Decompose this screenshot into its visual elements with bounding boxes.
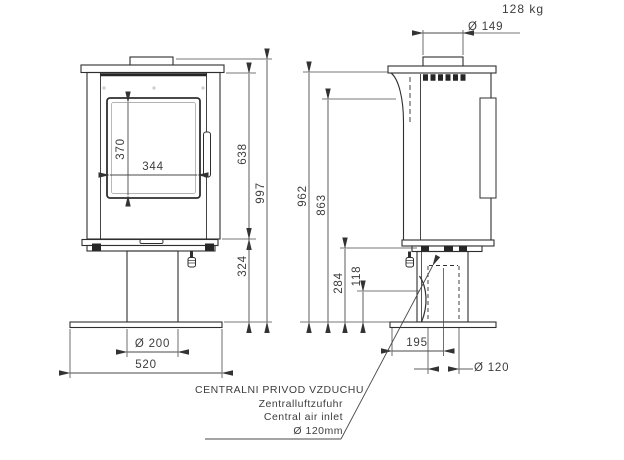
dim-label-pedestal-diameter: Ø 200 [132,337,173,351]
base-plate-side [390,322,496,328]
dim-label-air-inlet-offset: 195 [399,336,435,350]
dim-label-height-flue-axis: 863 [315,190,329,220]
panel-screw-marks [102,86,205,90]
caption-line-cz: CENTRALNI PRIVOD VZDUCHU [195,384,343,398]
air-control-lever-side [406,252,414,268]
front-bottom-recess [140,240,163,244]
air-inlet-caption: CENTRALNI PRIVOD VZDUCHU Zentralluftzufu… [195,384,343,438]
dim-label-window-width: 344 [138,160,168,174]
dim-label-flue-diameter: Ø 149 [468,20,522,34]
front-flue-collar [130,57,173,66]
dim-label-air-connection-height: 284 [332,268,346,298]
side-front-curve [391,73,404,240]
technical-drawing-sheet: 128 kg Ø 149 370 344 638 997 324 962 863… [0,0,624,460]
dim-label-air-inlet-diameter: Ø 120 [474,361,524,375]
dim-label-height-top-plate: 962 [296,181,310,211]
side-bottom-plate [402,240,494,246]
front-bottom-plate-2 [87,246,215,252]
caption-line-en: Central air inlet [195,411,343,425]
side-top-plate [388,66,496,73]
caption-line-diameter: Ø 120mm [195,425,343,439]
dim-label-window-height: 370 [114,134,128,164]
front-view [70,57,224,328]
air-hose [420,276,427,322]
front-top-plate [81,65,224,73]
side-flue-collar [423,57,463,67]
rear-heat-shield [480,98,496,198]
dim-label-base-width: 520 [128,358,164,372]
side-view [388,57,496,328]
dim-label-pedestal-height: 324 [236,251,250,281]
pedestal-front [127,251,178,322]
air-control-lever-front [188,251,196,267]
dim-label-body-height: 638 [236,139,250,169]
door-handle [204,132,211,177]
base-plate-front [70,322,222,328]
weight-label: 128 kg [502,2,572,16]
dim-label-air-pipe-height: 118 [350,261,364,291]
caption-line-de: Zentralluftzufuhr [195,398,343,412]
dim-label-total-height: 997 [254,178,268,208]
